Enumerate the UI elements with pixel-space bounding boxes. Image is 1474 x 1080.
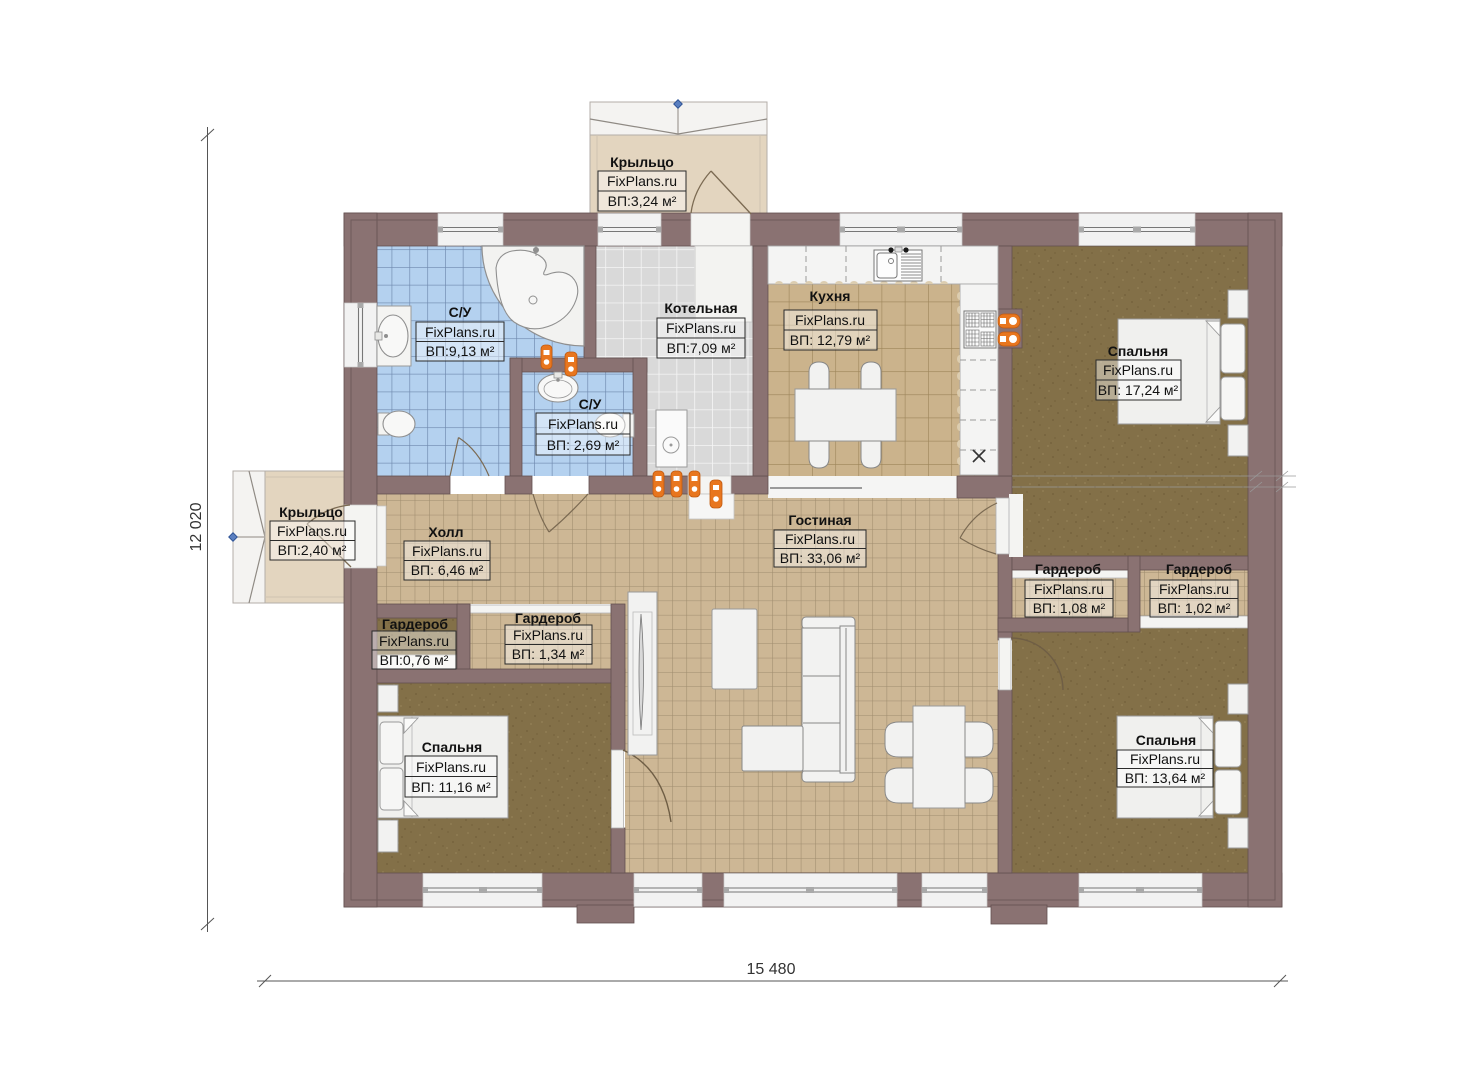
svg-text:15 480: 15 480 — [747, 961, 796, 978]
svg-text:Холл: Холл — [428, 524, 463, 540]
svg-text:ВП:3,24 м²: ВП:3,24 м² — [608, 193, 677, 209]
svg-text:FixPlans.ru: FixPlans.ru — [785, 531, 855, 547]
svg-text:С/У: С/У — [579, 396, 602, 412]
svg-text:ВП: 13,64 м²: ВП: 13,64 м² — [1125, 770, 1206, 786]
svg-text:FixPlans.ru: FixPlans.ru — [548, 416, 618, 432]
svg-text:Котельная: Котельная — [664, 300, 737, 316]
svg-text:FixPlans.ru: FixPlans.ru — [607, 173, 677, 189]
svg-text:FixPlans.ru: FixPlans.ru — [1034, 581, 1104, 597]
svg-text:ВП: 11,16 м²: ВП: 11,16 м² — [411, 779, 491, 795]
svg-text:ВП:7,09 м²: ВП:7,09 м² — [667, 340, 736, 356]
svg-text:FixPlans.ru: FixPlans.ru — [795, 312, 865, 328]
svg-text:Крыльцо: Крыльцо — [610, 154, 674, 170]
svg-text:FixPlans.ru: FixPlans.ru — [1159, 581, 1229, 597]
svg-text:ВП: 6,46 м²: ВП: 6,46 м² — [411, 562, 484, 578]
svg-text:ВП:2,40 м²: ВП:2,40 м² — [278, 542, 347, 558]
svg-text:ВП:9,13 м²: ВП:9,13 м² — [426, 343, 495, 359]
svg-text:ВП: 1,08 м²: ВП: 1,08 м² — [1033, 600, 1106, 616]
svg-text:Гардероб: Гардероб — [382, 616, 449, 632]
svg-text:FixPlans.ru: FixPlans.ru — [1103, 362, 1173, 378]
svg-text:Гардероб: Гардероб — [1035, 561, 1102, 577]
svg-text:FixPlans.ru: FixPlans.ru — [379, 633, 449, 649]
svg-text:Гостиная: Гостиная — [788, 512, 851, 528]
svg-text:ВП: 2,69 м²: ВП: 2,69 м² — [547, 437, 620, 453]
svg-text:FixPlans.ru: FixPlans.ru — [425, 324, 495, 340]
svg-text:12 020: 12 020 — [188, 502, 205, 551]
svg-text:FixPlans.ru: FixPlans.ru — [666, 320, 736, 336]
svg-text:ВП: 1,02 м²: ВП: 1,02 м² — [1158, 600, 1231, 616]
svg-text:ВП: 17,24 м²: ВП: 17,24 м² — [1098, 382, 1179, 398]
svg-text:FixPlans.ru: FixPlans.ru — [1130, 751, 1200, 767]
svg-text:Крыльцо: Крыльцо — [279, 504, 343, 520]
svg-text:С/У: С/У — [449, 304, 472, 320]
svg-text:ВП: 33,06 м²: ВП: 33,06 м² — [780, 550, 861, 566]
svg-text:Гардероб: Гардероб — [515, 610, 582, 626]
svg-text:Спальня: Спальня — [422, 739, 482, 755]
svg-text:FixPlans.ru: FixPlans.ru — [277, 523, 347, 539]
svg-text:Гардероб: Гардероб — [1166, 561, 1233, 577]
svg-text:Спальня: Спальня — [1136, 732, 1196, 748]
svg-text:FixPlans.ru: FixPlans.ru — [412, 543, 482, 559]
svg-text:ВП:0,76 м²: ВП:0,76 м² — [380, 652, 449, 668]
svg-text:Спальня: Спальня — [1108, 343, 1168, 359]
svg-text:Кухня: Кухня — [810, 288, 851, 304]
svg-text:ВП: 12,79 м²: ВП: 12,79 м² — [790, 332, 871, 348]
svg-text:FixPlans.ru: FixPlans.ru — [513, 627, 583, 643]
svg-text:FixPlans.ru: FixPlans.ru — [416, 759, 486, 775]
svg-text:ВП: 1,34 м²: ВП: 1,34 м² — [512, 646, 585, 662]
